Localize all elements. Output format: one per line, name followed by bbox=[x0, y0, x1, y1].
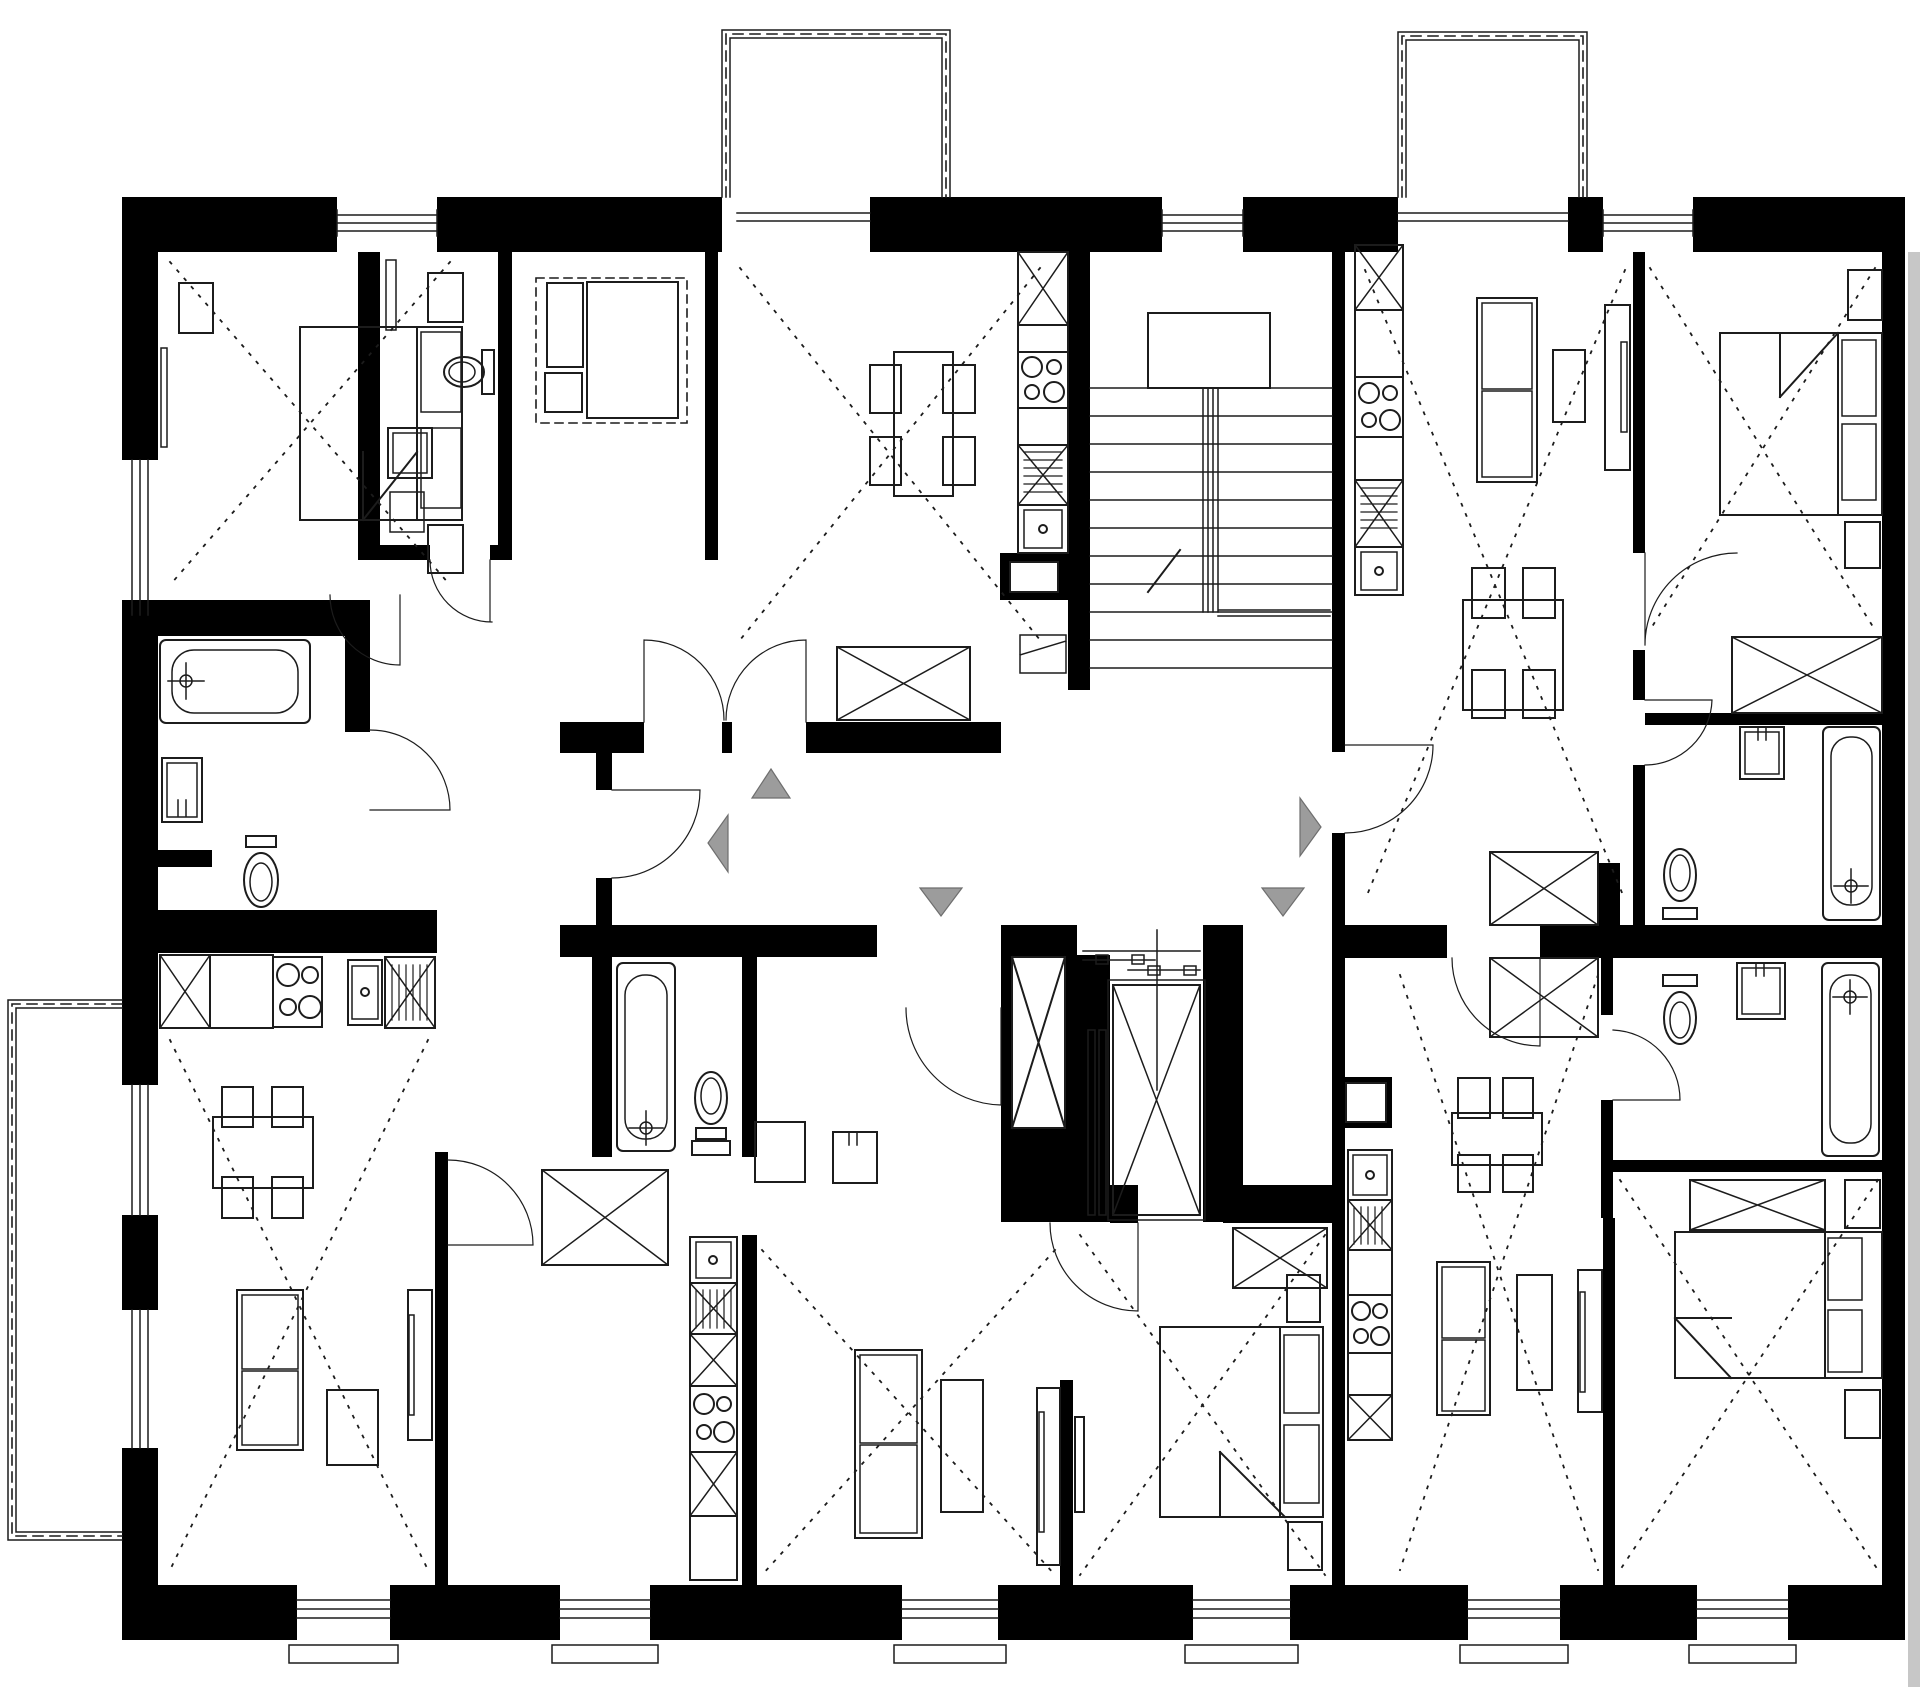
toilet-icon bbox=[444, 350, 494, 394]
stove-icon bbox=[273, 957, 322, 1027]
bathtub-icon bbox=[160, 640, 310, 723]
stove-icon bbox=[690, 1386, 737, 1452]
arrow-down-icon bbox=[920, 888, 962, 916]
dishwasher-icon bbox=[385, 957, 435, 1028]
stove-icon bbox=[1355, 377, 1403, 437]
dishwasher-icon bbox=[1355, 480, 1403, 547]
walls bbox=[122, 197, 1905, 1640]
bathtub-icon bbox=[1822, 963, 1879, 1156]
hall-wardrobe bbox=[837, 647, 970, 720]
stair-handrail bbox=[1203, 388, 1330, 616]
dishwasher-icon bbox=[1018, 445, 1068, 505]
basin-icon bbox=[1737, 963, 1785, 1019]
washing-machine-icon bbox=[162, 758, 202, 822]
toilet-icon bbox=[1663, 849, 1697, 919]
bed-upper-left bbox=[161, 273, 463, 573]
linework bbox=[8, 30, 1882, 1663]
balcony-top-right bbox=[1398, 32, 1587, 197]
stove-icon bbox=[1018, 352, 1068, 408]
kitchen-upper-middle bbox=[1018, 252, 1068, 553]
sink-icon bbox=[690, 1237, 737, 1283]
kitchen-lower-left bbox=[160, 955, 435, 1028]
arrow-up-icon bbox=[752, 769, 790, 798]
sink-icon bbox=[1018, 505, 1068, 553]
stove-icon bbox=[1348, 1295, 1392, 1353]
dishwasher-icon bbox=[1348, 1200, 1392, 1250]
wardrobe-mid-right-upper bbox=[1490, 852, 1598, 925]
sink-icon bbox=[348, 960, 382, 1025]
balcony-top-left bbox=[722, 30, 950, 197]
bathroom-lower-right bbox=[1663, 963, 1879, 1156]
staircase bbox=[1090, 313, 1332, 668]
toilet-icon bbox=[695, 1072, 727, 1139]
sink-icon bbox=[1355, 547, 1403, 595]
living-upper-right bbox=[1463, 298, 1630, 718]
living-upper-left bbox=[536, 278, 687, 423]
hall-wardrobe bbox=[542, 1170, 668, 1265]
bed-lower-middle bbox=[1160, 1275, 1323, 1570]
kitchen-lower-middle bbox=[690, 1237, 737, 1580]
bathtub-icon bbox=[617, 963, 675, 1151]
toilet-icon bbox=[1663, 975, 1697, 1044]
bathroom-upper-right bbox=[1663, 727, 1880, 920]
dining-upper-middle bbox=[837, 352, 975, 720]
living-lower-right bbox=[1437, 1078, 1825, 1415]
kitchen-upper-right bbox=[1355, 245, 1403, 595]
basin-icon bbox=[388, 428, 432, 478]
basin-icon bbox=[692, 1141, 730, 1155]
bathroom-upper-left bbox=[386, 260, 494, 532]
kitchen-lower-right bbox=[1348, 1150, 1392, 1440]
living-lower-middle bbox=[542, 1170, 1327, 1565]
dishwasher-icon bbox=[690, 1283, 737, 1334]
arrow-right-icon bbox=[1300, 798, 1321, 856]
bathtub-icon bbox=[1823, 727, 1880, 920]
sink-icon bbox=[1348, 1150, 1392, 1200]
bedroom-wardrobe bbox=[1690, 1180, 1825, 1230]
wardrobe-mid-right-lower bbox=[1490, 958, 1598, 1037]
entry-arrows bbox=[708, 769, 1321, 916]
corridor-niche-wardrobe bbox=[1012, 957, 1065, 1128]
bedroom-wardrobe bbox=[1233, 1228, 1327, 1288]
toilet-icon bbox=[244, 836, 278, 907]
living-lower-left bbox=[213, 1087, 432, 1465]
balcony-left-side bbox=[8, 1000, 122, 1540]
arrow-down-icon bbox=[1262, 888, 1304, 916]
basin-icon bbox=[1740, 727, 1784, 779]
arrow-left-icon bbox=[708, 815, 728, 872]
neighbor-building-strip bbox=[1908, 252, 1920, 1687]
wardrobe-upper-right-bedroom bbox=[1732, 637, 1882, 713]
floor-plan-page bbox=[0, 0, 1920, 1687]
floor-plan-drawing bbox=[0, 0, 1920, 1687]
